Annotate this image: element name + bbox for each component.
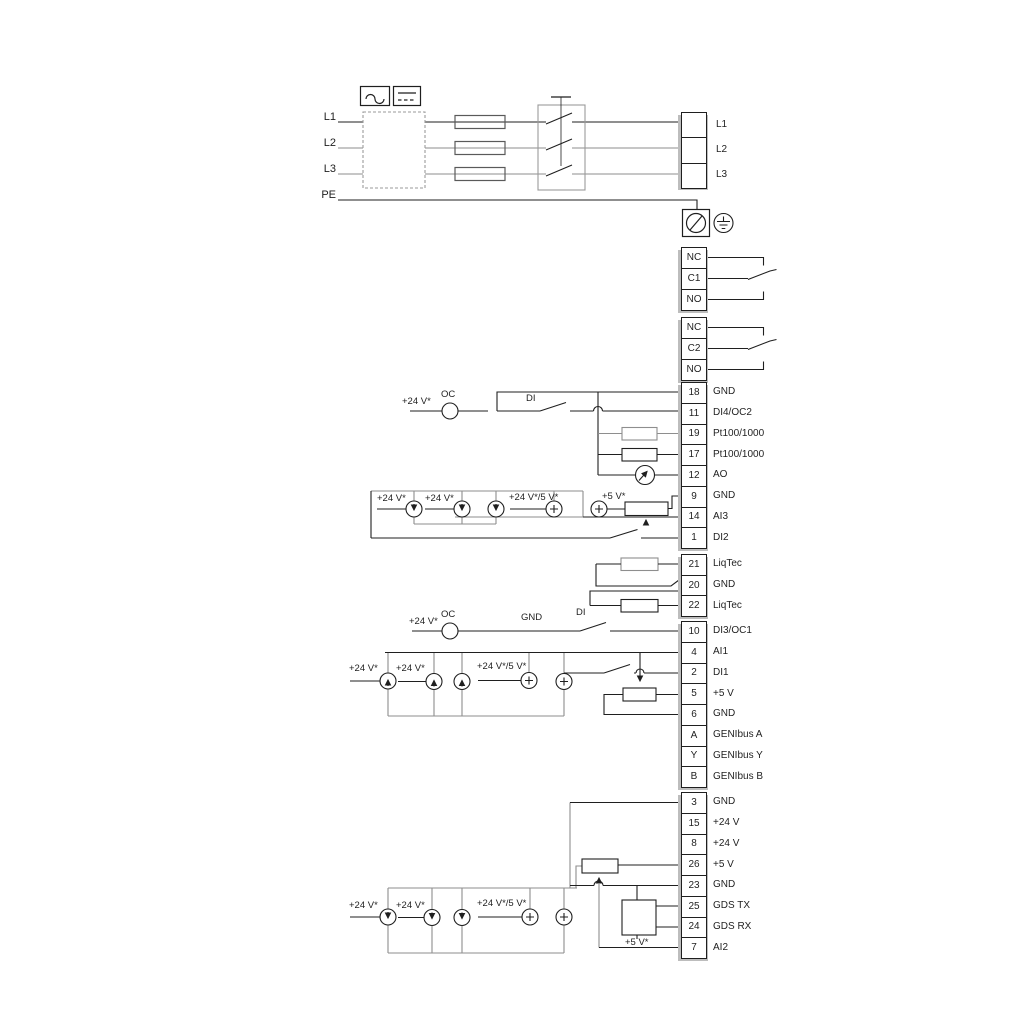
io1-block-terminal: 19: [681, 424, 707, 446]
liqtec-block-terminal-label: LiqTec: [713, 601, 742, 611]
mains-output-block-terminal-label: L3: [716, 170, 727, 180]
mains-wiring-gray: [338, 148, 681, 174]
io3-block-terminal-label: +5 V: [713, 860, 734, 870]
potentiometer-icon: [623, 688, 656, 701]
annotation-ai2-s3: +24 V*/5 V*: [477, 899, 526, 909]
relay1-block-terminal: NC: [681, 247, 707, 269]
liqtec-resistor-icon: [621, 600, 658, 613]
mains-input-label-l2: L2: [324, 138, 336, 149]
io3-wiring: [350, 803, 681, 948]
liqtec-block-terminal-label: LiqTec: [713, 559, 742, 569]
gds-module-box: [622, 900, 656, 935]
io3-block-terminal-label: GND: [713, 880, 735, 890]
open-collector-icon: [442, 623, 458, 639]
annotation-oc2-supply: +24 V*: [402, 397, 431, 407]
io1-block-terminal: 9: [681, 486, 707, 508]
liqtec-block-terminal-label: GND: [713, 580, 735, 590]
liqtec-block-terminal: 20: [681, 575, 707, 597]
mains-input-label-l1: L1: [324, 112, 336, 123]
relay2-block-terminal: NO: [681, 359, 707, 381]
io2-block-terminal: B: [681, 766, 707, 788]
io2-block-terminal: A: [681, 725, 707, 747]
relay1-block-terminal: NO: [681, 289, 707, 311]
io3-block-terminal: 7: [681, 937, 707, 959]
dc-symbol-icon: [394, 87, 421, 106]
pt100-resistor-gray-icon: [598, 428, 681, 441]
annotation-ai3-5v: +5 V*: [602, 492, 626, 502]
relay2-contact-icon: [707, 328, 777, 370]
io2-block-terminal-label: DI3/OC1: [713, 626, 752, 636]
rfi-filter-box: [363, 112, 425, 188]
annotation-oc1-supply: +24 V*: [409, 617, 438, 627]
io3-block-terminal: 15: [681, 813, 707, 835]
analog-output-meter-icon: [636, 466, 655, 485]
io2-block-terminal-label: GENIbus Y: [713, 751, 763, 761]
io1-block-terminal: 12: [681, 465, 707, 487]
io1-block-terminal: 18: [681, 382, 707, 404]
annotation-ai1-s2: +24 V*: [396, 664, 425, 674]
relay1-block-terminal: C1: [681, 268, 707, 290]
pe-terminal-icon: [683, 210, 710, 237]
io3-block-terminal: 8: [681, 834, 707, 856]
io3-block-terminal-label: +24 V: [713, 818, 739, 828]
annotation-ai3-s3: +24 V*/5 V*: [509, 493, 558, 503]
io2-block-terminal-label: DI1: [713, 668, 729, 678]
disconnect-switch-icon: [538, 97, 585, 190]
io1-block-terminal-label: DI4/OC2: [713, 408, 752, 418]
potentiometer-icon: [625, 502, 668, 516]
relay1-contact-icon: [707, 258, 777, 300]
mains-output-block-terminal: [681, 112, 707, 138]
mains-output-block-terminal: [681, 163, 707, 189]
io3-block-terminal-label: GDS RX: [713, 922, 751, 932]
relay2-block-terminal: C2: [681, 338, 707, 360]
open-collector-icon: [442, 403, 458, 419]
annotation-ai3-s2: +24 V*: [425, 494, 454, 504]
io1-block-terminal: 17: [681, 444, 707, 466]
io1-block-terminal-label: AI3: [713, 512, 728, 522]
io1-block-terminal: 1: [681, 527, 707, 549]
io1-block-terminal-label: AO: [713, 470, 727, 480]
io1-block-terminal-label: DI2: [713, 533, 729, 543]
io3-block-terminal-label: AI2: [713, 943, 728, 953]
io3-block-terminal: 25: [681, 896, 707, 918]
annotation-ai3-s1: +24 V*: [377, 494, 406, 504]
io3-block-terminal: 3: [681, 792, 707, 814]
annotation-oc1-di: DI: [576, 608, 586, 618]
io2-block-terminal: 6: [681, 704, 707, 726]
relay2-block-terminal: NC: [681, 317, 707, 339]
mains-output-block-terminal: [681, 137, 707, 163]
io1-block-terminal-label: GND: [713, 491, 735, 501]
io2-block-terminal: 2: [681, 663, 707, 685]
io2-block-terminal-label: GENIbus B: [713, 772, 763, 782]
liqtec-wiring: [590, 564, 681, 612]
io1-wiring: [410, 392, 681, 485]
mains-output-block-terminal-label: L1: [716, 120, 727, 130]
mains-output-block-terminal-label: L2: [716, 145, 727, 155]
mains-wiring-black: [338, 122, 697, 210]
io2-block-terminal-label: GND: [713, 709, 735, 719]
annotation-oc2-di: DI: [526, 394, 536, 404]
io1-block-terminal: 11: [681, 403, 707, 425]
io2-block-terminal-label: AI1: [713, 647, 728, 657]
liqtec-resistor-gray-icon: [621, 558, 658, 571]
annotation-ai1-s3: +24 V*/5 V*: [477, 662, 526, 672]
annotation-oc2-oc: OC: [441, 390, 455, 400]
mains-input-label-l3: L3: [324, 164, 336, 175]
wiring-diagram-canvas: L1L2L3PE L1L2L3NCC1NONCC2NO18GND11DI4/OC…: [0, 0, 1024, 1024]
io1-block-terminal-label: Pt100/1000: [713, 429, 764, 439]
io2-block-terminal-label: GENIbus A: [713, 730, 762, 740]
annotation-gds-5v: +5 V*: [625, 938, 649, 948]
ac-symbol-icon: [361, 87, 390, 106]
io2-block-terminal: 4: [681, 642, 707, 664]
pt100-resistor-icon: [622, 449, 657, 462]
io3-block-terminal-label: GDS TX: [713, 901, 750, 911]
annotation-oc1-gnd: GND: [521, 613, 542, 623]
io3-block-terminal-label: GND: [713, 797, 735, 807]
annotation-oc1-oc: OC: [441, 610, 455, 620]
potentiometer-icon: [582, 859, 618, 873]
io2-block-terminal: Y: [681, 746, 707, 768]
io1-block-terminal-label: GND: [713, 387, 735, 397]
mains-input-label-pe: PE: [321, 190, 336, 201]
io3-block-terminal: 26: [681, 854, 707, 876]
io3-block-terminal-label: +24 V: [713, 839, 739, 849]
wiring-diagram-svg: [0, 0, 1024, 1024]
io1-block-terminal: 14: [681, 507, 707, 529]
liqtec-block-terminal: 21: [681, 554, 707, 576]
io3-bracket-gray: [388, 803, 599, 954]
annotation-ai2-s1: +24 V*: [349, 901, 378, 911]
io3-block-terminal: 24: [681, 917, 707, 939]
annotation-ai2-s2: +24 V*: [396, 901, 425, 911]
io2-block-terminal-label: +5 V: [713, 689, 734, 699]
annotation-ai1-s1: +24 V*: [349, 664, 378, 674]
io2-block-terminal: 10: [681, 621, 707, 643]
io3-block-terminal: 23: [681, 875, 707, 897]
liqtec-block-terminal: 22: [681, 595, 707, 617]
io2-block-terminal: 5: [681, 683, 707, 705]
io1-block-terminal-label: Pt100/1000: [713, 450, 764, 460]
earth-ground-icon: [714, 214, 733, 233]
